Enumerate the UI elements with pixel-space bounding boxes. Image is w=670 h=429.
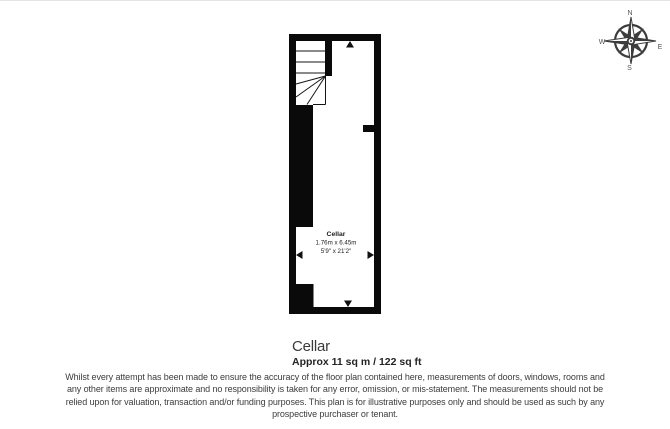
room-label: Cellar (327, 231, 346, 238)
area-text: Approx 11 sq m / 122 sq ft (292, 356, 422, 368)
disclaimer-line: prospective purchaser or tenant. (0, 408, 670, 420)
room-dimensions-imperial: 5'9" x 21'2" (321, 248, 352, 255)
stair-wall-stub (325, 41, 332, 76)
disclaimer: Whilst every attempt has been made to en… (0, 371, 670, 421)
right-wall-notch (363, 125, 374, 132)
top-border-line (0, 0, 670, 1)
interior-wall-lower (296, 284, 314, 307)
compass-drawing: N S E W (592, 6, 670, 74)
compass-west-label: W (599, 39, 606, 46)
compass-rose: N S E W (592, 6, 670, 74)
compass-hub-dot (630, 40, 632, 42)
disclaimer-line: Whilst every attempt has been made to en… (0, 371, 670, 383)
compass-north-label: N (627, 10, 632, 17)
disclaimer-line: any other items are approximate and no r… (0, 383, 670, 395)
page-title: Cellar (292, 339, 330, 355)
interior-wall-upper (296, 105, 313, 227)
disclaimer-line: relied upon for valuation, transaction a… (0, 396, 670, 408)
compass-south-label: S (627, 65, 632, 72)
floorplan-drawing: Cellar 1.76m x 6.45m 5'9" x 21'2" (289, 34, 381, 314)
compass-east-label: E (658, 44, 663, 51)
room-dimensions-metric: 1.76m x 6.45m (316, 240, 357, 247)
floorplan: Cellar 1.76m x 6.45m 5'9" x 21'2" (289, 34, 381, 314)
